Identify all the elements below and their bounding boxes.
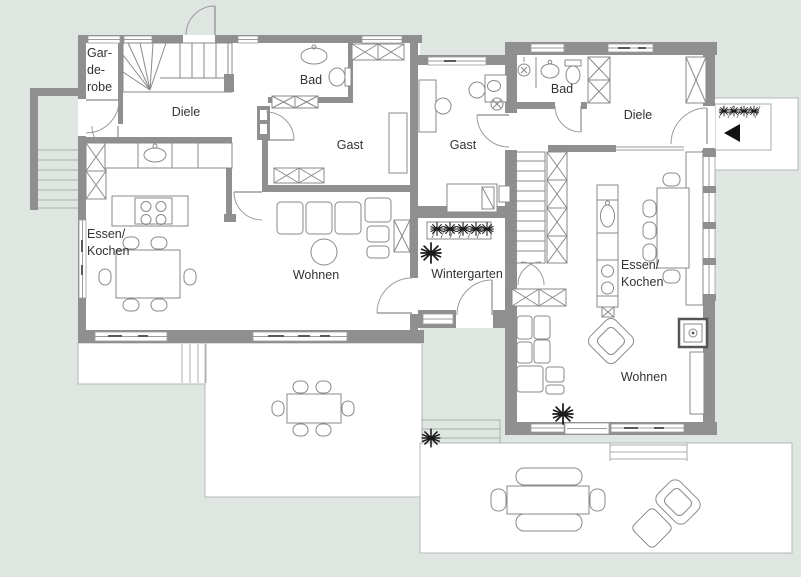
kitchen-island: [112, 196, 188, 226]
plant-icon: [431, 223, 444, 236]
desk: [419, 80, 436, 132]
plant-icon: [457, 223, 470, 236]
room-label-bad-right: Bad: [546, 81, 578, 98]
plant-icon: [422, 429, 440, 447]
wintergarten-plant-box: [427, 222, 493, 239]
coffee-table: [311, 239, 337, 265]
guest-room-left-furniture: [389, 113, 407, 173]
plant-icon: [444, 223, 457, 236]
sideboard: [690, 352, 704, 414]
room-label-wintergarten: Wintergarten: [420, 266, 514, 283]
fireplace: [679, 319, 707, 347]
plant-icon: [421, 243, 441, 263]
room-label-bad-left: Bad: [296, 72, 326, 89]
room-label-garderobe: Gar- de- robe: [87, 45, 112, 95]
room-label-diele-left: Diele: [158, 104, 214, 121]
room-label-wohnen-left: Wohnen: [284, 267, 348, 284]
plant-icon: [729, 106, 739, 116]
room-label-gast-middle: Gast: [437, 137, 489, 154]
plant-icon: [553, 404, 573, 424]
floor-plan-drawing: [0, 0, 801, 577]
plant-icon: [481, 223, 494, 236]
room-label-essen-kochen-left: Essen/ Kochen: [87, 226, 129, 260]
plant-icon: [749, 106, 759, 116]
room-label-gast-left: Gast: [324, 137, 376, 154]
plant-icon: [739, 106, 749, 116]
room-label-wohnen-right: Wohnen: [611, 369, 677, 386]
floor-plan: Gar- de- robe Diele Bad Gast Essen/ Koch…: [0, 0, 801, 577]
room-label-diele-right: Diele: [612, 107, 664, 124]
room-label-essen-kochen-right: Essen/ Kochen: [621, 257, 663, 291]
exterior-stair-left: [30, 88, 78, 210]
plant-icon: [719, 106, 729, 116]
kitchen-island: [597, 185, 618, 307]
